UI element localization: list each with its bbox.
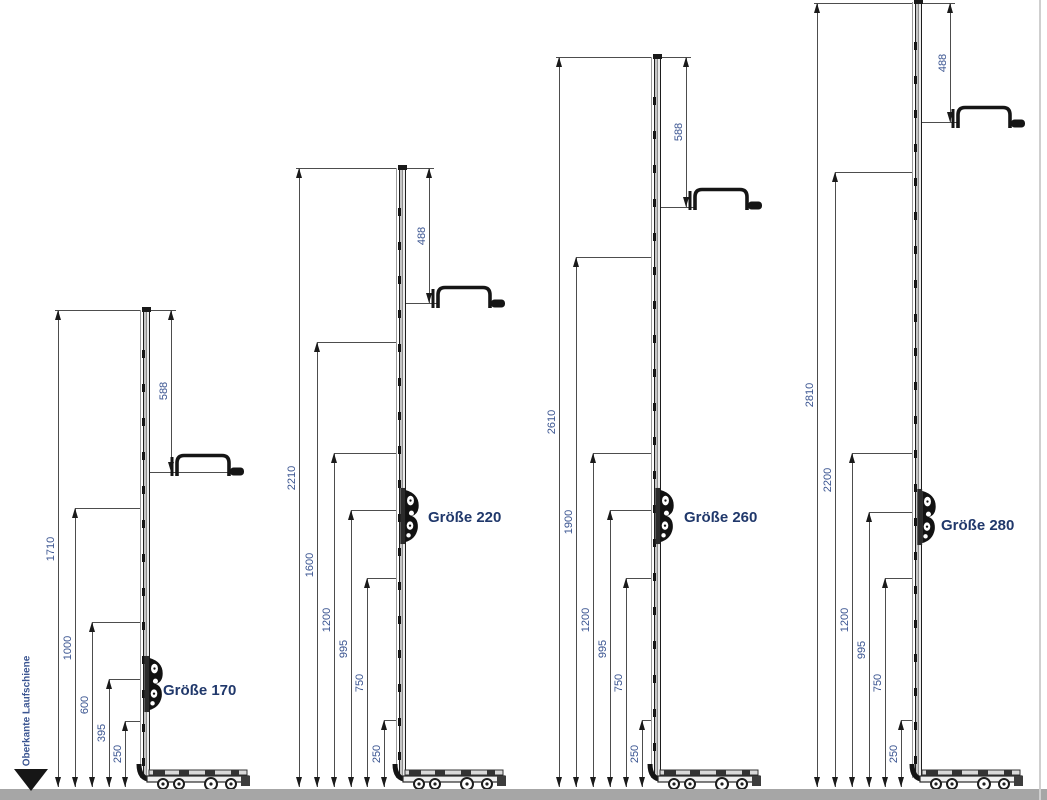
dim-value-600: 600 [79,695,91,713]
size-label-280: Größe 280 [941,517,1014,534]
dim-value-1900: 1900 [563,510,575,534]
dim-value-2210: 2210 [286,465,298,489]
extension-line-280-750 [885,578,912,579]
extension-line-260-750 [626,578,651,579]
dim-170-600: 600 [92,622,93,787]
dim-260-250: 250 [642,720,643,787]
roller-carriage-220 [389,764,511,792]
dim-220-250: 250 [384,720,385,787]
gearbox-220 [399,487,421,545]
dim-170-588: 588 [171,310,172,472]
rail-220 [396,168,406,778]
extension-line-220-995 [351,510,400,511]
ground-line [0,789,1047,800]
dim-280-2810: 2810 [817,3,818,787]
dim-170-1000: 1000 [75,508,76,787]
dim-value-995: 995 [856,640,868,658]
extension-line-280-1200 [852,453,912,454]
extension-line-260-1900 [576,257,651,258]
roller-carriage-280 [906,764,1028,792]
dim-280-1200: 1200 [852,453,853,787]
dim-170-250: 250 [125,721,126,787]
dim-value-1200: 1200 [321,608,333,632]
dim-260-1900: 1900 [576,257,577,787]
dim-value-488: 488 [416,226,428,244]
page-border [1039,0,1041,800]
dim-170-1710: 1710 [58,310,59,787]
dim-value-1000: 1000 [62,635,74,659]
extension-line-170-1000 [75,508,140,509]
dim-value-1600: 1600 [304,552,316,576]
extension-line-220-750 [367,578,396,579]
gearbox-170 [143,655,165,713]
dim-260-995: 995 [610,510,611,787]
dim-value-2610: 2610 [546,410,558,434]
rail-280 [912,2,922,778]
dim-value-588: 588 [673,123,685,141]
dim-220-750: 750 [367,578,368,787]
dim-260-1200: 1200 [593,453,594,787]
size-label-220: Größe 220 [428,509,501,526]
dim-value-395: 395 [96,724,108,742]
dim-value-488: 488 [937,53,949,71]
datum-triangle-icon [14,769,48,791]
dim-220-1200: 1200 [334,453,335,787]
top-extension-line-260 [556,57,691,58]
dim-value-995: 995 [597,639,609,657]
dim-value-588: 588 [158,382,170,400]
dim-280-250: 250 [901,720,902,787]
crank-handle-260 [685,183,763,213]
dim-280-995: 995 [869,512,870,787]
dim-value-750: 750 [872,673,884,691]
extension-line-220-1600 [317,342,396,343]
extension-line-170-395 [109,679,143,680]
gearbox-280 [916,488,938,546]
dim-value-995: 995 [338,639,350,657]
extension-line-280-2200 [835,172,912,173]
extension-line-220-1200 [334,453,396,454]
top-extension-line-280 [814,3,955,4]
dim-170-395: 395 [109,679,110,787]
extension-line-280-995 [869,512,916,513]
crank-handle-220 [428,281,506,311]
dim-value-750: 750 [613,673,625,691]
top-extension-line-220 [296,168,434,169]
roller-carriage-260 [644,764,766,792]
dim-280-750: 750 [885,578,886,787]
dim-value-750: 750 [354,673,366,691]
extension-line-260-1200 [593,453,651,454]
dim-value-2200: 2200 [822,467,834,491]
dim-value-1200: 1200 [580,608,592,632]
dim-260-2610: 2610 [559,57,560,787]
dim-260-750: 750 [626,578,627,787]
dim-220-2210: 2210 [299,168,300,787]
crank-handle-280 [948,101,1026,131]
roller-carriage-170 [133,764,255,792]
dim-220-995: 995 [351,510,352,787]
rail-260 [651,57,661,778]
extension-line-170-600 [92,622,140,623]
extension-line-260-995 [610,510,656,511]
dim-220-1600: 1600 [317,342,318,787]
dim-value-250: 250 [888,744,900,762]
dim-value-250: 250 [371,744,383,762]
dim-value-250: 250 [629,744,641,762]
dim-280-2200: 2200 [835,172,836,787]
technical-drawing: 1710 1000 600 395 250 588 Größe 170 2210… [0,0,1047,800]
size-label-170: Größe 170 [163,682,236,699]
gearbox-260 [654,487,676,545]
top-extension-line-170 [55,310,176,311]
dim-value-1710: 1710 [45,536,57,560]
crank-handle-170 [167,449,245,479]
dim-value-2810: 2810 [804,383,816,407]
size-label-260: Größe 260 [684,509,757,526]
dim-value-250: 250 [112,745,124,763]
dim-value-1200: 1200 [839,608,851,632]
